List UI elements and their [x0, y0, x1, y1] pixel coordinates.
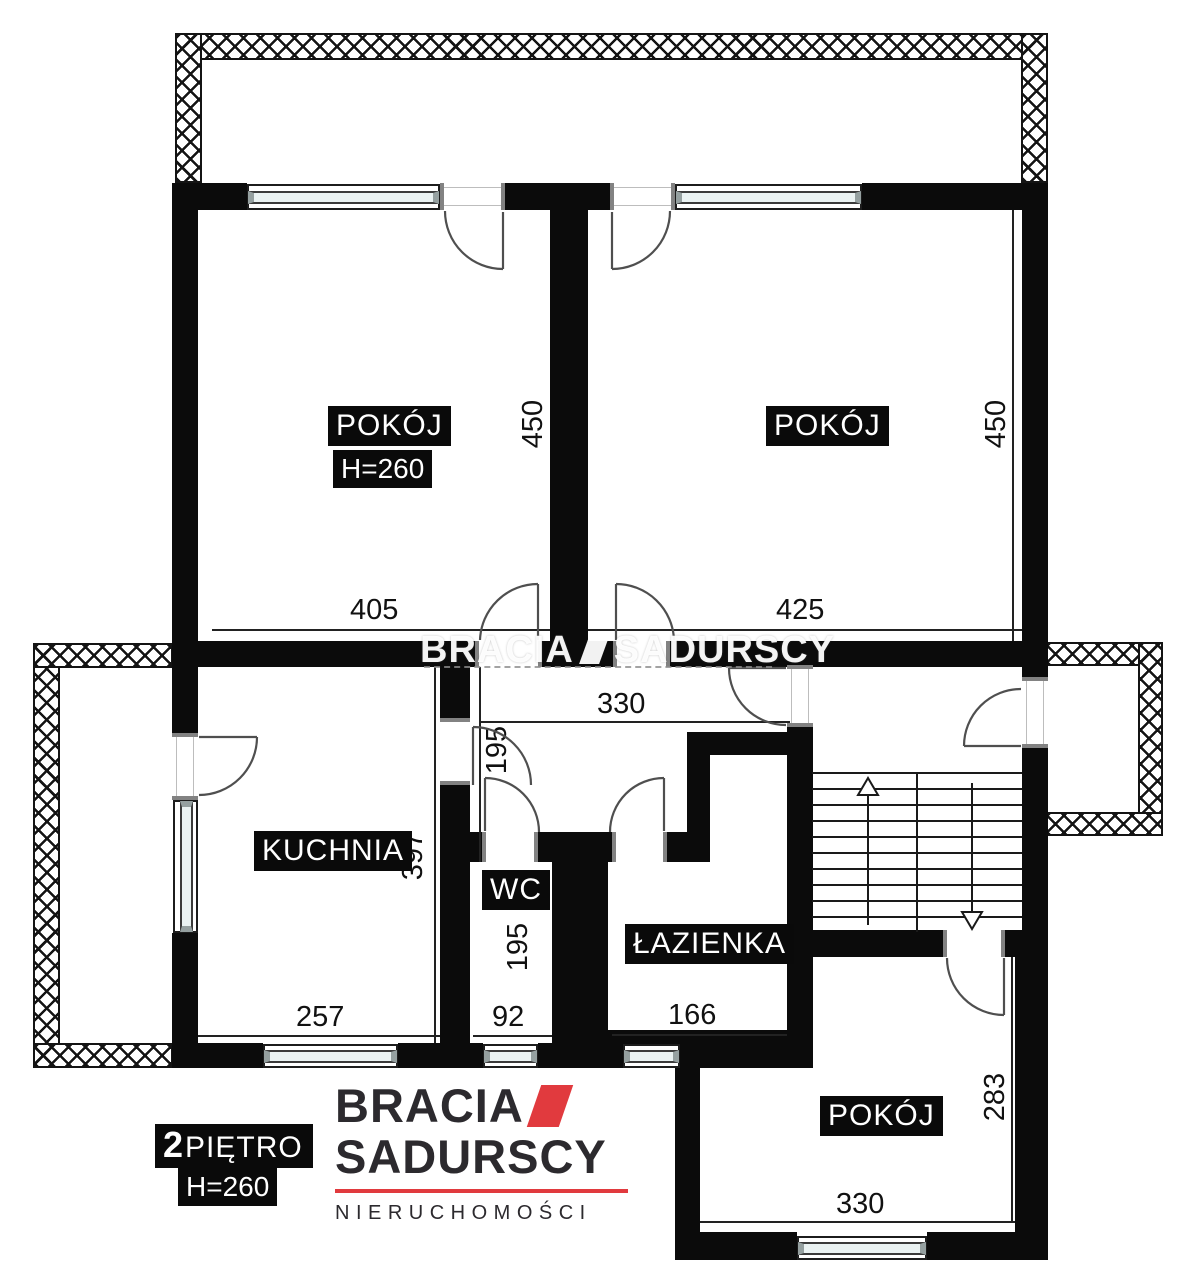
door-kitchen — [473, 727, 531, 785]
door-wc — [485, 778, 539, 832]
door-bathroom — [610, 778, 664, 832]
door-balcony-room-tl — [445, 211, 503, 269]
door-balcony-room-tr — [612, 211, 670, 269]
door-room-bottom — [947, 958, 1004, 1015]
door-balcony-kitchen — [199, 737, 257, 795]
stairs-up-arrow — [858, 778, 878, 925]
floor-plan: 405 450 425 450 330 195 397 257 92 195 1… — [0, 0, 1200, 1287]
watermark-underline — [424, 666, 772, 668]
stairs-down-arrow — [962, 783, 982, 929]
watermark-logo-icon — [579, 637, 609, 664]
door-entry — [729, 668, 786, 725]
door-balcony-right — [964, 689, 1021, 746]
